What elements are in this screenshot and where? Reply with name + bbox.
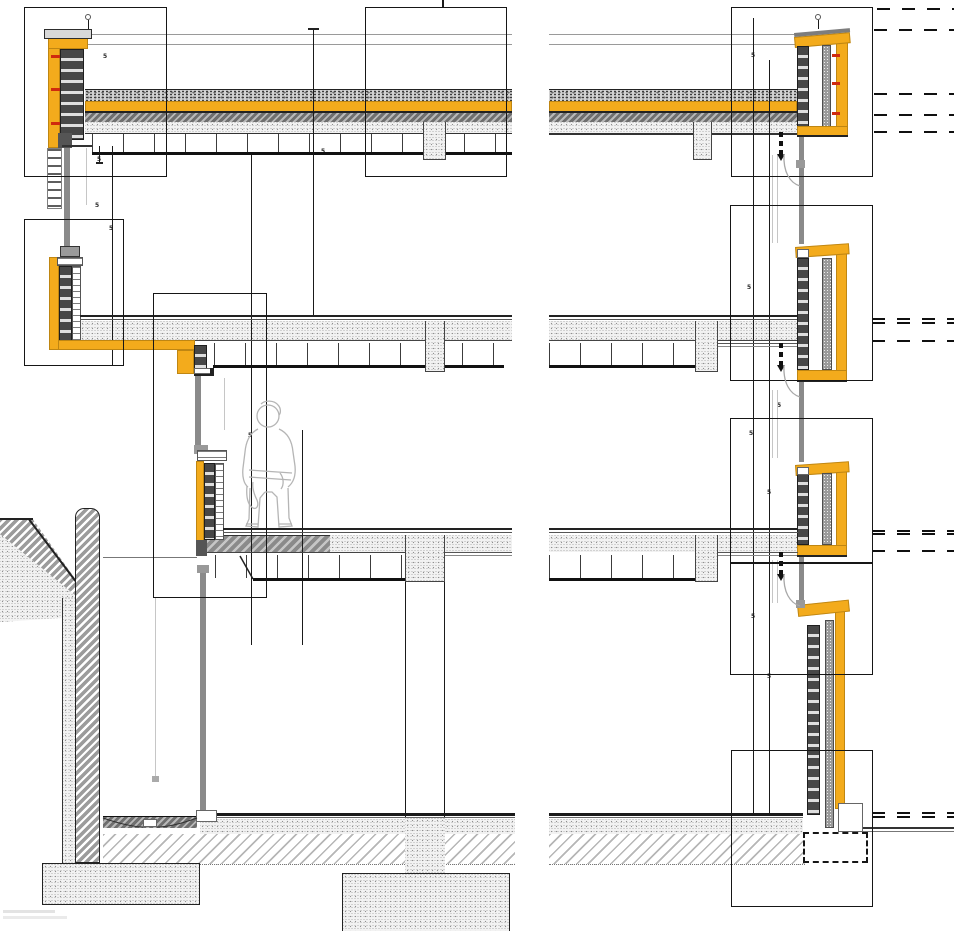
downstand-beam: [693, 122, 712, 160]
suspended-ceiling-line: [549, 578, 695, 581]
dimension-mark: 5: [95, 203, 99, 209]
wall-backfill-strip: [62, 598, 75, 863]
stamp-smudge: [3, 916, 67, 919]
detail-callout-box: [153, 293, 267, 598]
break-dash-line: [872, 318, 954, 320]
break-dash-line: [872, 340, 954, 342]
suspended-screen-line: [155, 598, 156, 778]
suspended-ceiling-line: [549, 365, 695, 368]
soffit-line: [445, 552, 512, 553]
drain-channel: [143, 819, 157, 827]
screen-end-block: [152, 776, 159, 782]
ground-slab-concrete: [200, 819, 515, 834]
floor-finish-line: [80, 315, 512, 317]
detail-callout-box: [24, 219, 124, 366]
column-edge-line: [405, 582, 406, 818]
glazing-sill: [196, 810, 217, 822]
ceiling-hangers: [549, 343, 693, 365]
glazing-mullion: [200, 573, 206, 810]
pad-footing: [342, 873, 510, 931]
callout-tick: [442, 0, 444, 7]
downstand-beam: [425, 321, 445, 372]
floor-finish-line: [200, 813, 515, 816]
break-dash-line: [874, 131, 954, 133]
downstand-beam: [695, 321, 718, 372]
downstand-beam: [695, 535, 718, 582]
floor-finish-line: [200, 817, 515, 818]
ceiling-hangers: [549, 555, 693, 578]
break-dash-line: [877, 8, 954, 10]
break-dash-line: [872, 812, 954, 814]
detail-callout-box: [730, 418, 873, 563]
detail-callout-box: [365, 7, 507, 177]
floor-finish-line: [80, 319, 512, 320]
concrete-slab: [80, 321, 512, 340]
break-dash-line: [872, 550, 954, 552]
break-dash-line: [872, 322, 954, 324]
downstand-beam: [405, 535, 445, 582]
break-dash-line: [872, 533, 954, 535]
break-dash-line: [874, 93, 954, 95]
section-tick: [308, 28, 319, 30]
section-line: [313, 28, 314, 315]
break-dash-line: [872, 816, 954, 818]
detail-callout-box: [730, 205, 873, 381]
detail-callout-box: [730, 563, 873, 675]
soffit-line: [445, 555, 512, 556]
break-dash-line: [874, 29, 954, 31]
section-drawing-sheet: 555555555555555: [0, 0, 954, 931]
detail-callout-box: [731, 750, 873, 907]
section-line: [302, 430, 303, 645]
retaining-wall-column: [75, 508, 100, 863]
break-dash-line: [872, 530, 954, 532]
stamp-smudge: [3, 910, 55, 913]
subgrade-hatch: [103, 834, 515, 865]
column-edge-line: [444, 582, 445, 818]
strip-footing: [42, 863, 200, 905]
detail-callout-box: [731, 7, 873, 177]
column-base: [405, 818, 445, 873]
suspended-ceiling-line: [253, 578, 407, 581]
detail-callout-box: [24, 7, 167, 177]
break-dash-line: [874, 114, 954, 116]
